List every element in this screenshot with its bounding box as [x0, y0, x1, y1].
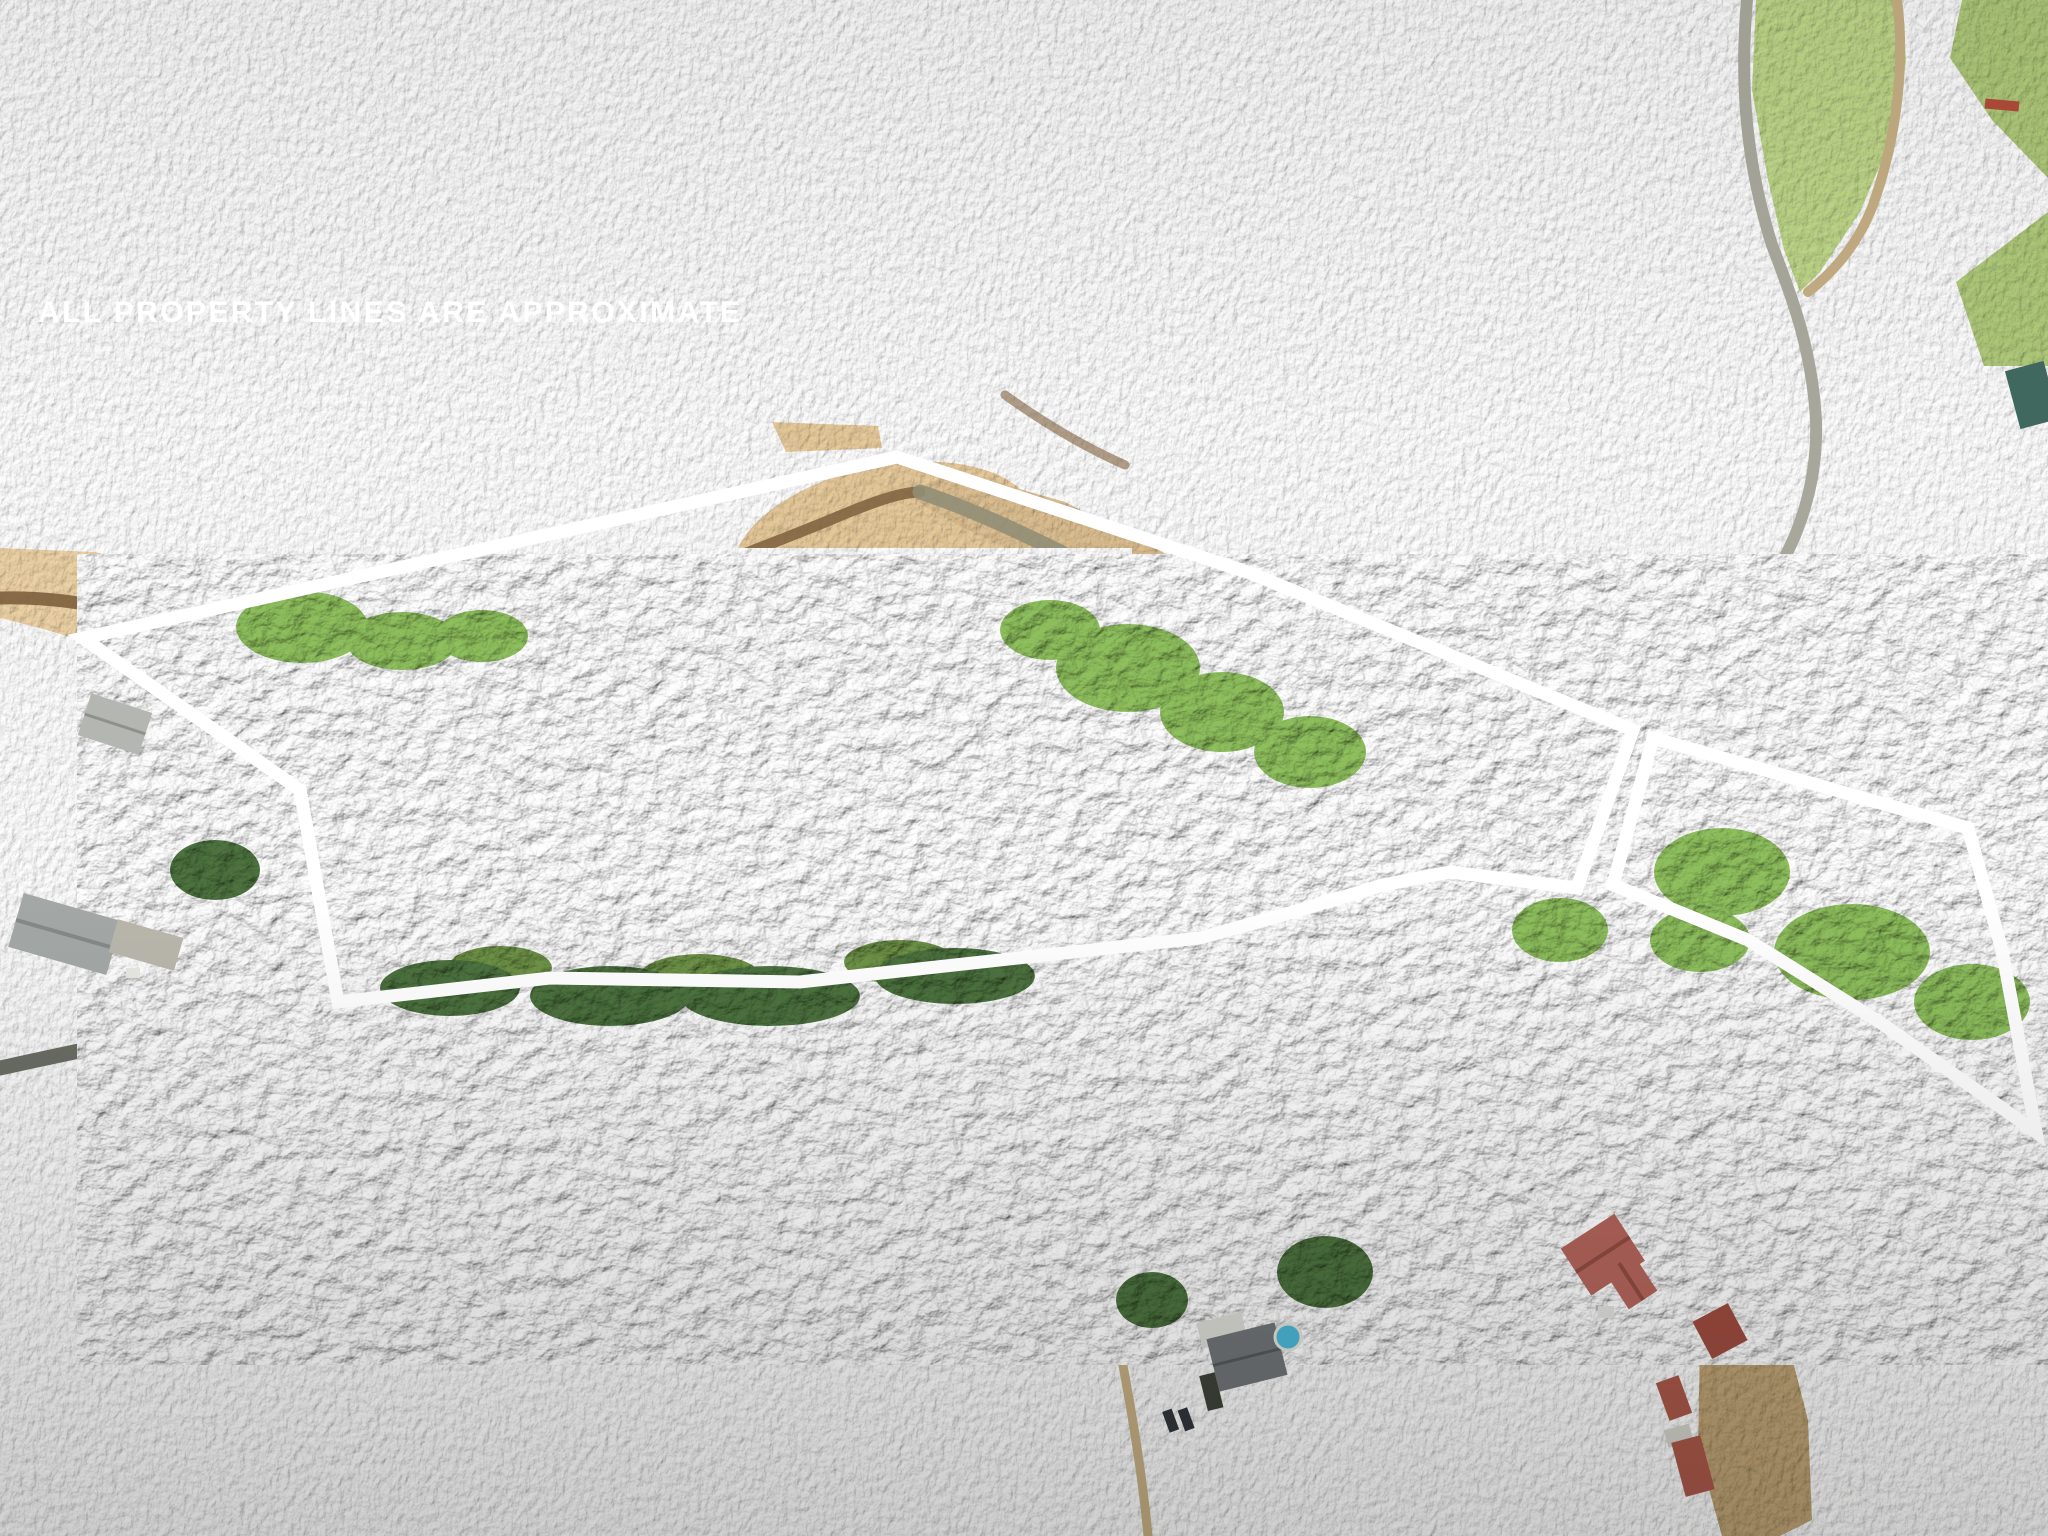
forest-clearing — [27, 1189, 203, 1321]
north-sand-patch — [772, 422, 882, 452]
aerial-photo-canvas — [0, 0, 2048, 1536]
aerial-photo: ALL PROPERTY LINES ARE APPROXIMATE — [0, 0, 2048, 1536]
gravel-patch — [1422, 892, 1532, 1002]
swimming-pool — [1275, 1324, 1301, 1350]
small-white-shed — [126, 968, 140, 978]
white-tarp — [1598, 1306, 1614, 1318]
cemetery-pasture — [215, 1154, 425, 1270]
forest-clearing-yellow — [0, 1426, 153, 1518]
property-disclaimer-text: ALL PROPERTY LINES ARE APPROXIMATE — [38, 296, 742, 330]
